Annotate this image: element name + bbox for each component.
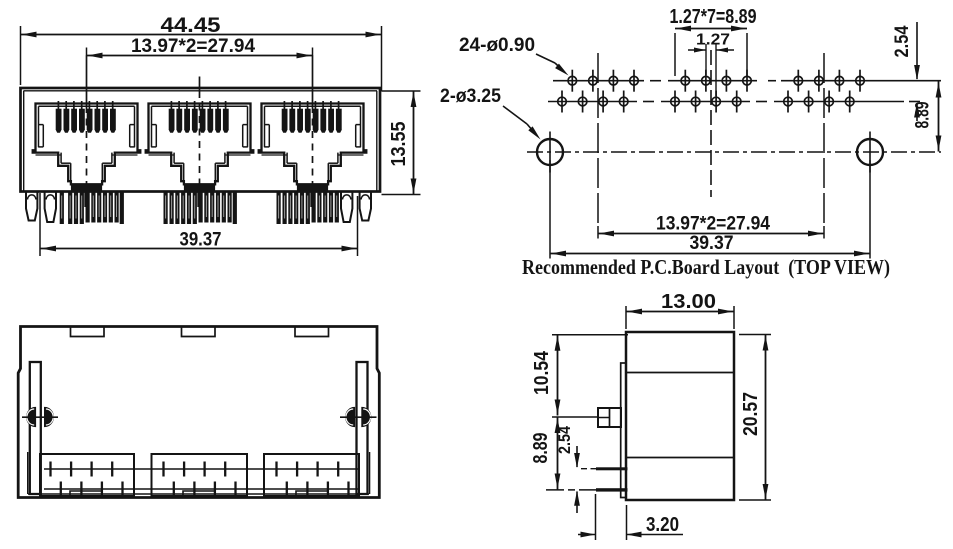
svg-text:3.20: 3.20 bbox=[646, 514, 679, 536]
svg-text:39.37: 39.37 bbox=[180, 230, 222, 251]
svg-text:2.54: 2.54 bbox=[892, 25, 913, 57]
svg-text:44.45: 44.45 bbox=[161, 14, 221, 37]
svg-text:1.27: 1.27 bbox=[696, 32, 730, 49]
svg-text:20.57: 20.57 bbox=[740, 392, 762, 436]
svg-text:8.89: 8.89 bbox=[913, 102, 934, 129]
svg-text:2-ø3.25: 2-ø3.25 bbox=[440, 86, 501, 107]
svg-text:8.89: 8.89 bbox=[530, 433, 552, 464]
svg-text:24-ø0.90: 24-ø0.90 bbox=[459, 35, 535, 56]
svg-text:2.54: 2.54 bbox=[555, 426, 574, 454]
svg-text:Recommended P.C.Board Layout: Recommended P.C.Board Layout (TOP VIEW) bbox=[522, 255, 890, 279]
svg-text:1.27*7=8.89: 1.27*7=8.89 bbox=[670, 6, 757, 28]
svg-text:13.00: 13.00 bbox=[661, 291, 716, 313]
svg-text:13.97*2=27.94: 13.97*2=27.94 bbox=[131, 36, 255, 57]
svg-text:10.54: 10.54 bbox=[531, 350, 553, 395]
svg-text:39.37: 39.37 bbox=[690, 233, 734, 254]
svg-text:13.97*2=27.94: 13.97*2=27.94 bbox=[656, 214, 770, 235]
svg-text:13.55: 13.55 bbox=[388, 122, 410, 167]
